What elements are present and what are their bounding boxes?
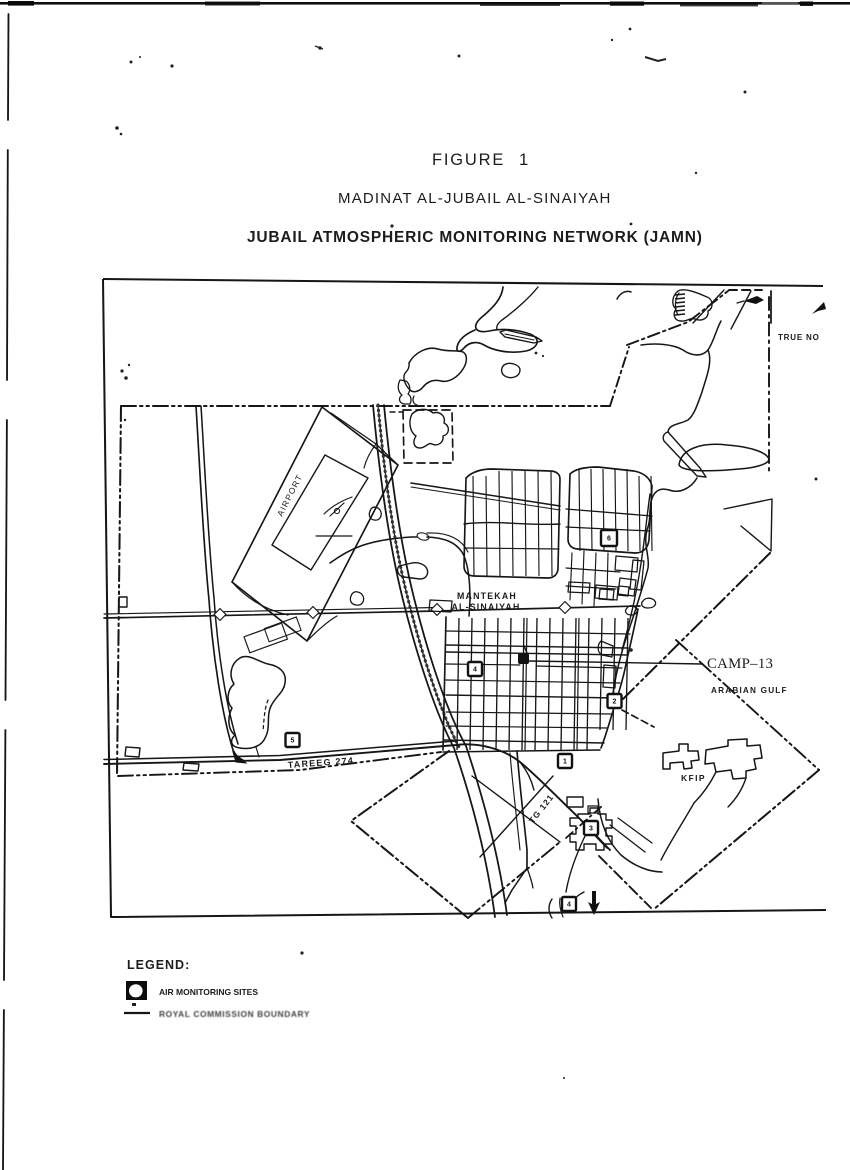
svg-text:MANTEKAH: MANTEKAH xyxy=(457,591,517,601)
svg-text:CAMP–13: CAMP–13 xyxy=(707,656,773,672)
svg-text:AL-SINAIYAH: AL-SINAIYAH xyxy=(451,602,520,612)
svg-text:6: 6 xyxy=(607,536,611,543)
svg-text:JUBAIL ATMOSPHERIC MONITORING: JUBAIL ATMOSPHERIC MONITORING NETWORK (J… xyxy=(247,229,703,246)
svg-text:KFIP: KFIP xyxy=(681,773,706,783)
svg-text:2: 2 xyxy=(613,699,617,706)
svg-text:TRUE NO: TRUE NO xyxy=(778,333,820,342)
svg-text:1: 1 xyxy=(519,151,529,169)
svg-text:FIGURE: FIGURE xyxy=(432,151,505,169)
svg-text:ARABIAN GULF: ARABIAN GULF xyxy=(711,686,788,695)
svg-text:4: 4 xyxy=(567,902,571,909)
svg-text:1: 1 xyxy=(563,759,567,766)
svg-text:LEGEND:: LEGEND: xyxy=(127,958,190,972)
svg-text:5: 5 xyxy=(291,738,295,745)
svg-text:AIR MONITORING SITES: AIR MONITORING SITES xyxy=(159,987,258,997)
svg-text:4: 4 xyxy=(473,667,477,674)
svg-text:3: 3 xyxy=(589,826,593,833)
svg-text:ROYAL COMMISSION BOUNDARY: ROYAL COMMISSION BOUNDARY xyxy=(159,1009,310,1019)
svg-text:MADINAT AL-JUBAIL AL-SINAIYAH: MADINAT AL-JUBAIL AL-SINAIYAH xyxy=(338,190,611,207)
svg-text:AIRPORT: AIRPORT xyxy=(275,472,305,518)
